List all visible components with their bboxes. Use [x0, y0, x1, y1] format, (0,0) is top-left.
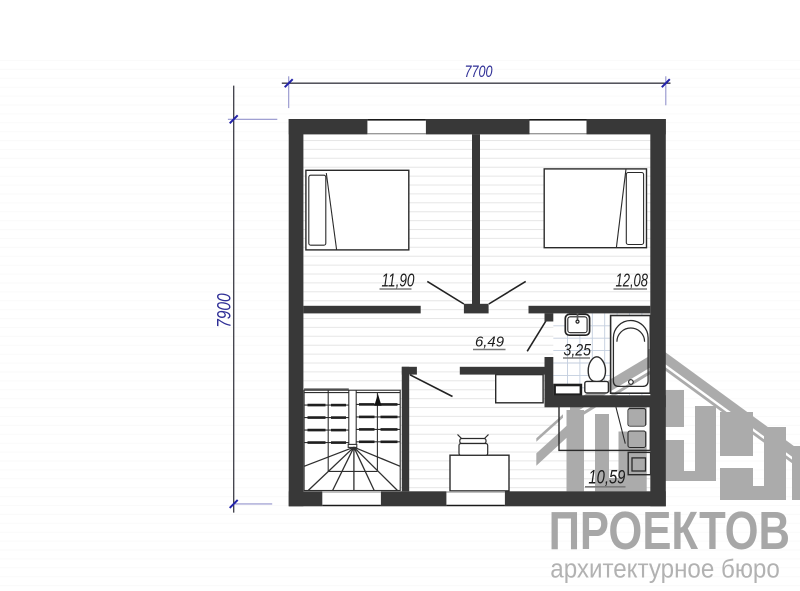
svg-text:6,49: 6,49 — [475, 334, 505, 351]
svg-text:12,08: 12,08 — [616, 270, 649, 291]
svg-text:3,25: 3,25 — [564, 341, 592, 360]
svg-text:10,59: 10,59 — [588, 468, 625, 489]
svg-text:7700: 7700 — [465, 62, 494, 81]
svg-text:архитектурное бюро: архитектурное бюро — [550, 556, 780, 584]
svg-text:7900: 7900 — [215, 293, 236, 328]
svg-text:11,90: 11,90 — [382, 270, 416, 291]
svg-text:ПРОЕКТОВ: ПРОЕКТОВ — [549, 501, 790, 561]
